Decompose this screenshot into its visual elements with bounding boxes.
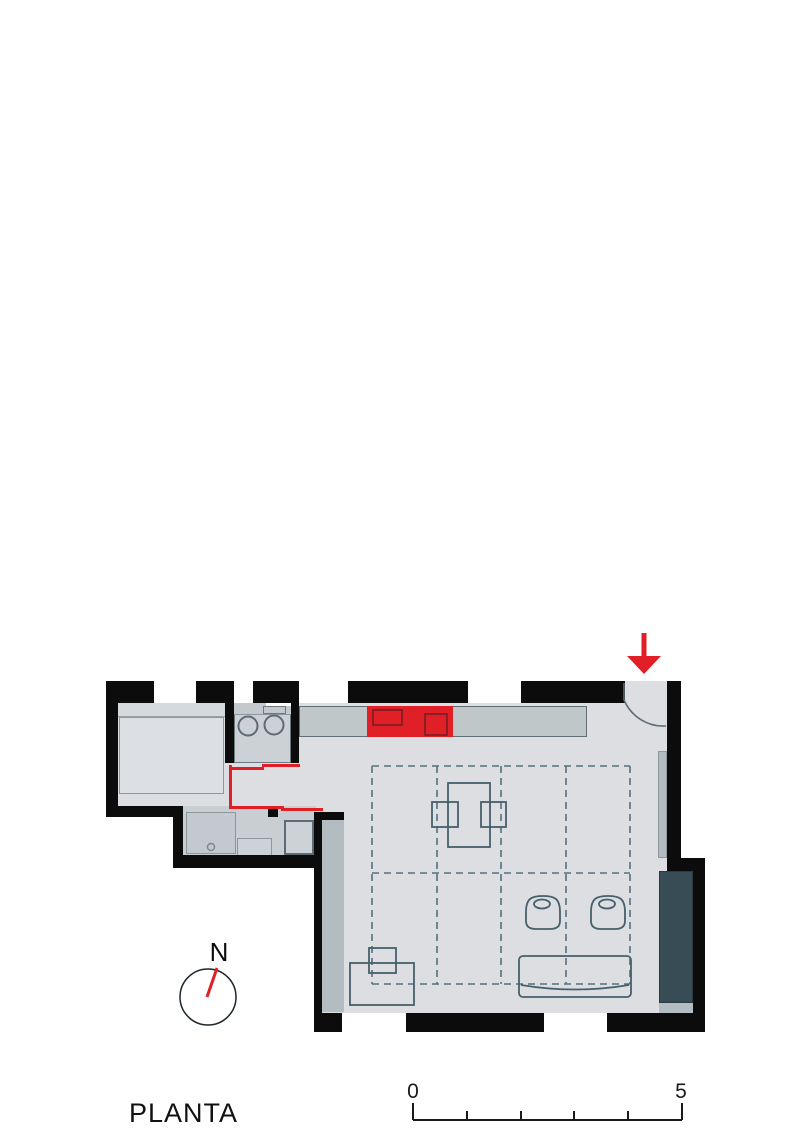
new-partition-upper-a [229,767,264,770]
new-partition-lower-a [229,806,284,809]
new-partition-upper-b [262,764,300,767]
wall-appliance-divider [291,681,299,763]
bed-headboard [118,703,225,717]
left-wall-strip [322,820,344,1012]
wall-bathroom-bottom [173,855,316,868]
entrance-door-opening [625,681,667,703]
appliance-shelf [263,706,286,714]
right-window-sill [658,751,667,858]
window-opening [544,1013,607,1032]
bed-mattress [119,717,224,794]
toilet-fixture [284,820,314,855]
wall-bedroom-bottom [106,806,183,817]
wall-right-lower [693,858,705,1032]
new-partition-vertical [229,765,232,809]
wall-living-left [314,812,322,1032]
north-compass-icon: N [180,937,236,1025]
scale-start-label: 0 [407,1080,419,1103]
dark-panel-cap [659,1003,693,1013]
window-opening [342,1013,406,1032]
wall-right-upper [667,681,681,858]
floor-plan-canvas: N 0 5 PLANTA [0,0,812,1144]
wardrobe-dark-panel [659,871,693,1003]
wall-strip-cap [322,812,344,820]
entrance-arrow-icon [627,633,661,674]
wall-bath-door-stub [268,808,278,817]
window-opening [154,681,196,703]
shower-tray [186,812,236,854]
living-room-floor [322,858,693,1013]
window-opening [299,681,348,703]
wall-left [106,681,118,817]
new-partition-lower-b [281,808,323,811]
window-opening [468,681,521,703]
north-label: N [210,937,229,967]
scale-bar [413,1103,682,1120]
cooktop-red-block [367,706,453,737]
wall-bed-kitchen-divider [225,681,234,763]
plan-title: PLANTA [129,1098,238,1129]
scale-end-label: 5 [675,1080,687,1103]
bathroom-sink [237,838,272,856]
